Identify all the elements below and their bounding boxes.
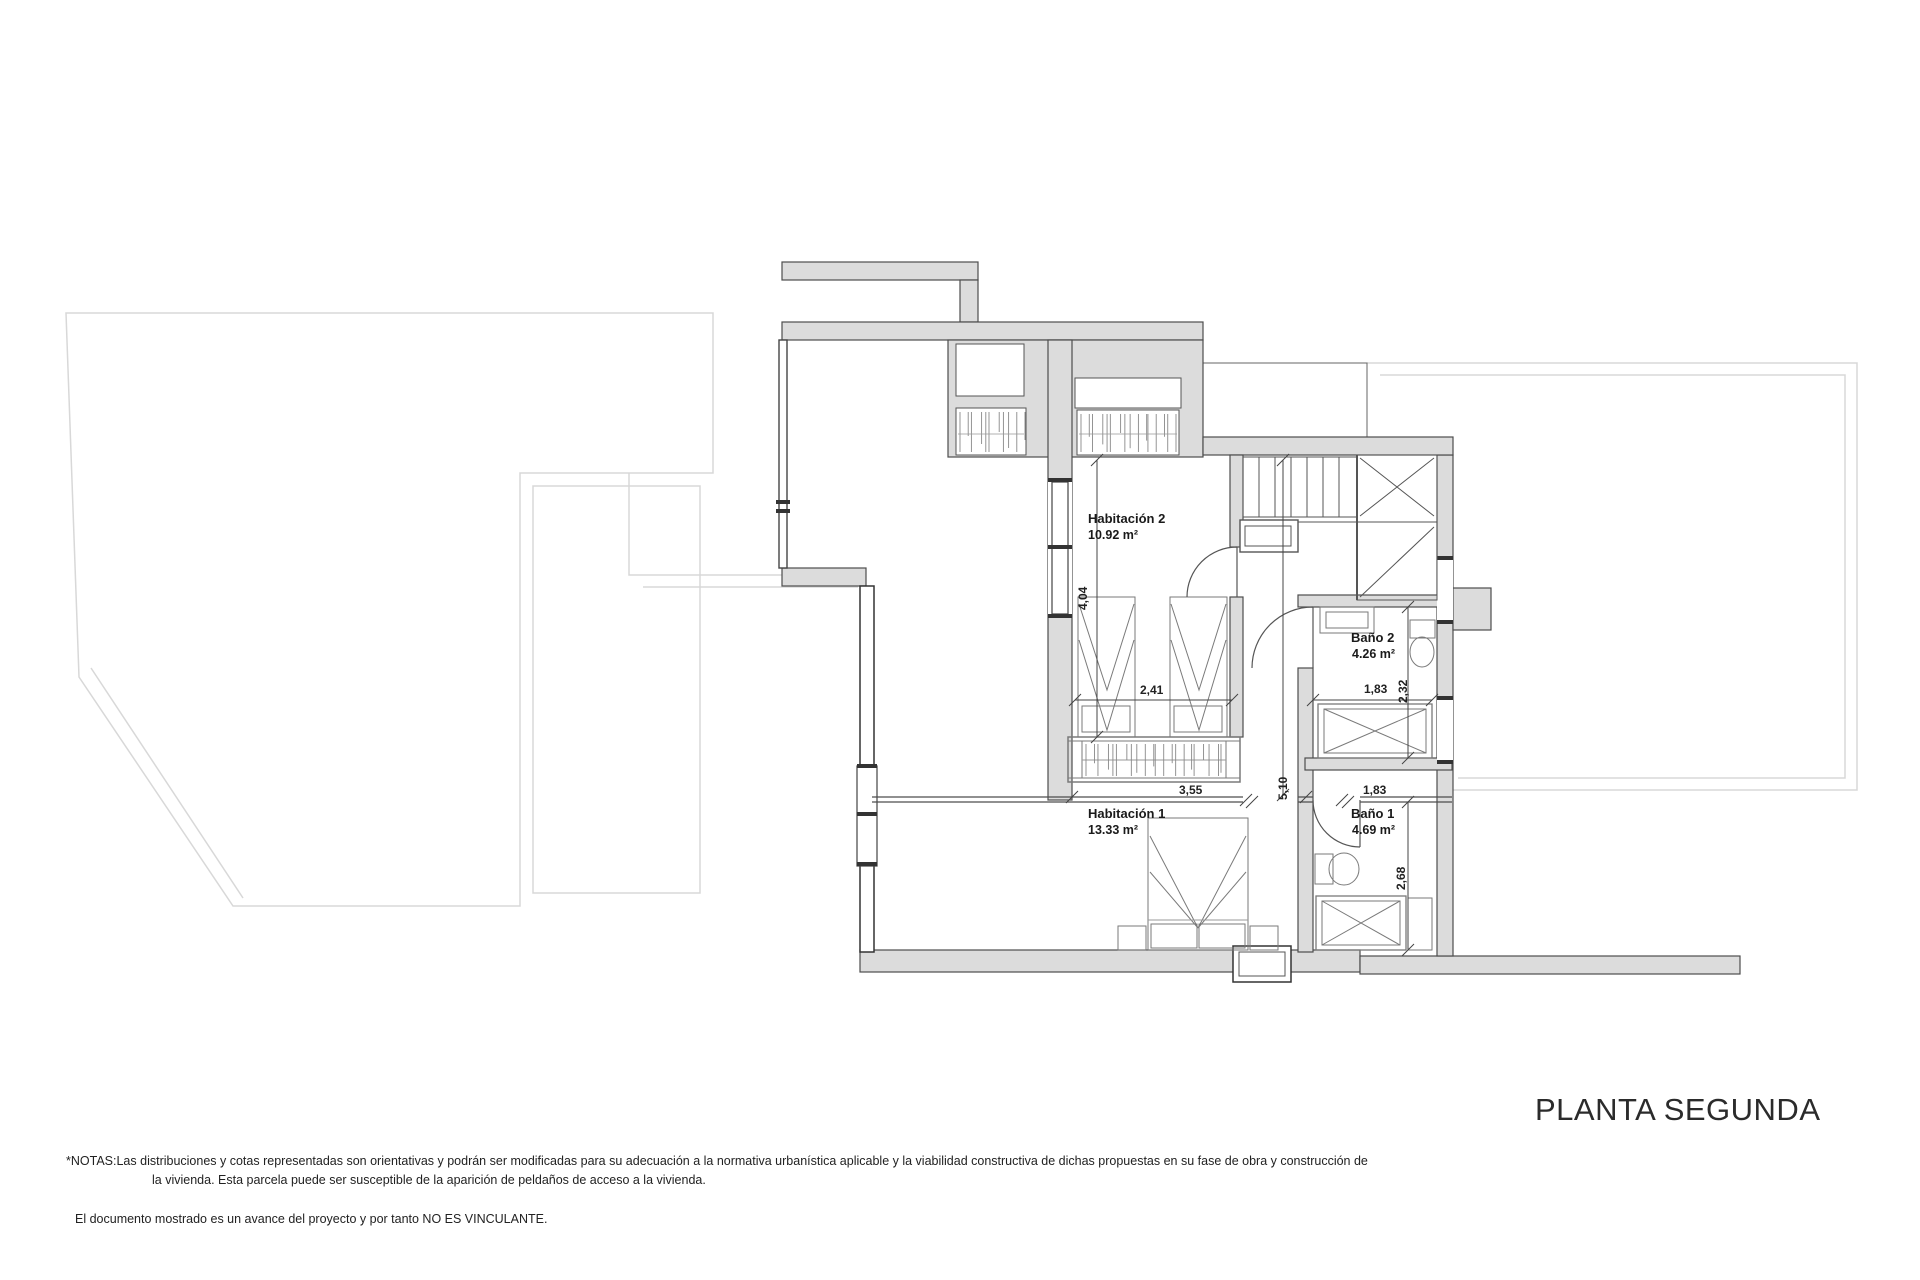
dim-hall-length: 5,10 (1276, 777, 1290, 800)
room-area-hab1: 13.33 m² (1088, 823, 1138, 838)
staircase (1240, 455, 1437, 600)
dim-hab2-closet-width: 3,55 (1179, 783, 1202, 797)
floor-plan-drawing (0, 0, 1920, 1280)
dim-hab2-width: 2,41 (1140, 683, 1163, 697)
notes-line-1: *NOTAS:Las distribuciones y cotas repres… (66, 1154, 1368, 1168)
notes-line-2: la vivienda. Esta parcela puede ser susc… (152, 1173, 706, 1187)
upper-void-outline (1203, 363, 1367, 437)
notes-label: *NOTAS: (66, 1154, 116, 1168)
dim-hab2-height: 4,04 (1076, 587, 1090, 610)
dim-bano1-width: 1,83 (1363, 783, 1386, 797)
room-label-bano2: Baño 2 (1351, 630, 1394, 646)
disclaimer: El documento mostrado es un avance del p… (75, 1212, 547, 1226)
room-label-bano1: Baño 1 (1351, 806, 1394, 822)
windows (1048, 478, 1453, 982)
room-area-bano1: 4.69 m² (1352, 823, 1395, 838)
hab1-top-wall (872, 797, 1452, 802)
dim-bano2-width: 1,83 (1364, 682, 1387, 696)
room-label-hab1: Habitación 1 (1088, 806, 1165, 822)
dim-bano2-depth: 2,32 (1396, 680, 1410, 703)
furniture-hab1 (1118, 818, 1278, 950)
room-area-bano2: 4.26 m² (1352, 647, 1395, 662)
floor-plan-page: Habitación 2 10.92 m² Habitación 1 13.33… (0, 0, 1920, 1280)
west-walls (776, 340, 877, 952)
walls (782, 262, 1740, 974)
plan-title: PLANTA SEGUNDA (1535, 1092, 1821, 1128)
fixtures-bano1 (1315, 853, 1432, 950)
room-area-hab2: 10.92 m² (1088, 528, 1138, 543)
notes-text-1: Las distribuciones y cotas representadas… (116, 1154, 1367, 1168)
dim-bano1-depth: 2,68 (1394, 867, 1408, 890)
room-label-hab2: Habitación 2 (1088, 511, 1165, 527)
